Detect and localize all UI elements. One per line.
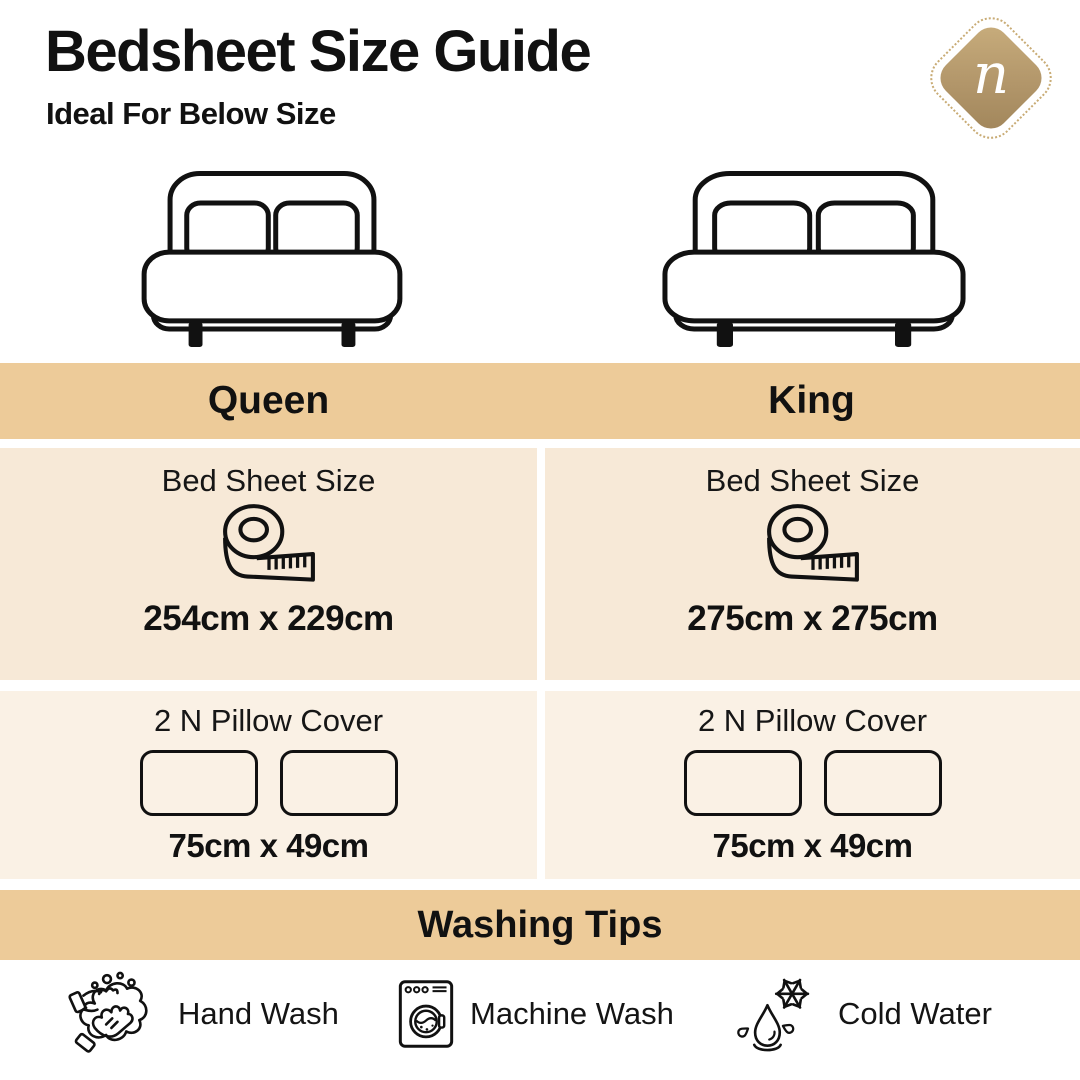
machine-wash-icon [398, 979, 454, 1049]
pillow-cover-label: 2 N Pillow Cover [698, 703, 927, 739]
pillow-outline-icon [684, 750, 802, 816]
queen-pillow-size: 75cm x 49cm [169, 827, 369, 865]
page-subtitle: Ideal For Below Size [46, 96, 336, 132]
pillow-outline-icon [140, 750, 258, 816]
cold-water-icon [734, 970, 822, 1058]
size-header-band: Queen King [0, 363, 1080, 439]
queen-bedsheet-size: 254cm x 229cm [143, 599, 393, 639]
pillow-outline-icon [824, 750, 942, 816]
brand-logo-letter: n [950, 37, 1032, 119]
tip-machine-wash: Machine Wash [398, 962, 674, 1066]
queen-pillow-cell: 2 N Pillow Cover 75cm x 49cm [0, 691, 537, 879]
washing-tips-title: Washing Tips [418, 904, 663, 947]
column-header-queen: Queen [0, 363, 537, 439]
king-bedsheet-cell: Bed Sheet Size 275cm x 275cm [545, 448, 1080, 680]
measuring-tape-icon [210, 501, 328, 599]
queen-bed-icon [133, 167, 411, 347]
bedsheet-size-label: Bed Sheet Size [162, 463, 376, 499]
pillow-icons [684, 750, 942, 816]
column-header-king: King [543, 363, 1080, 439]
bedsheet-size-label: Bed Sheet Size [706, 463, 920, 499]
king-pillow-size: 75cm x 49cm [713, 827, 913, 865]
washing-tips-band: Washing Tips [0, 890, 1080, 960]
brand-logo: n [933, 20, 1049, 136]
pillow-outline-icon [280, 750, 398, 816]
king-bedsheet-size: 275cm x 275cm [687, 599, 937, 639]
measuring-tape-icon [754, 501, 872, 599]
king-pillow-cell: 2 N Pillow Cover 75cm x 49cm [545, 691, 1080, 879]
pillow-cover-label: 2 N Pillow Cover [154, 703, 383, 739]
page-title: Bedsheet Size Guide [45, 18, 590, 85]
tip-label: Machine Wash [470, 996, 674, 1032]
pillow-icons [140, 750, 398, 816]
tip-label: Hand Wash [178, 996, 339, 1032]
king-bed-icon [652, 167, 976, 347]
queen-bedsheet-cell: Bed Sheet Size 254cm x 229cm [0, 448, 537, 680]
tip-cold-water: Cold Water [734, 962, 992, 1066]
tip-label: Cold Water [838, 996, 992, 1032]
hand-wash-icon [66, 968, 162, 1060]
tip-hand-wash: Hand Wash [66, 962, 339, 1066]
